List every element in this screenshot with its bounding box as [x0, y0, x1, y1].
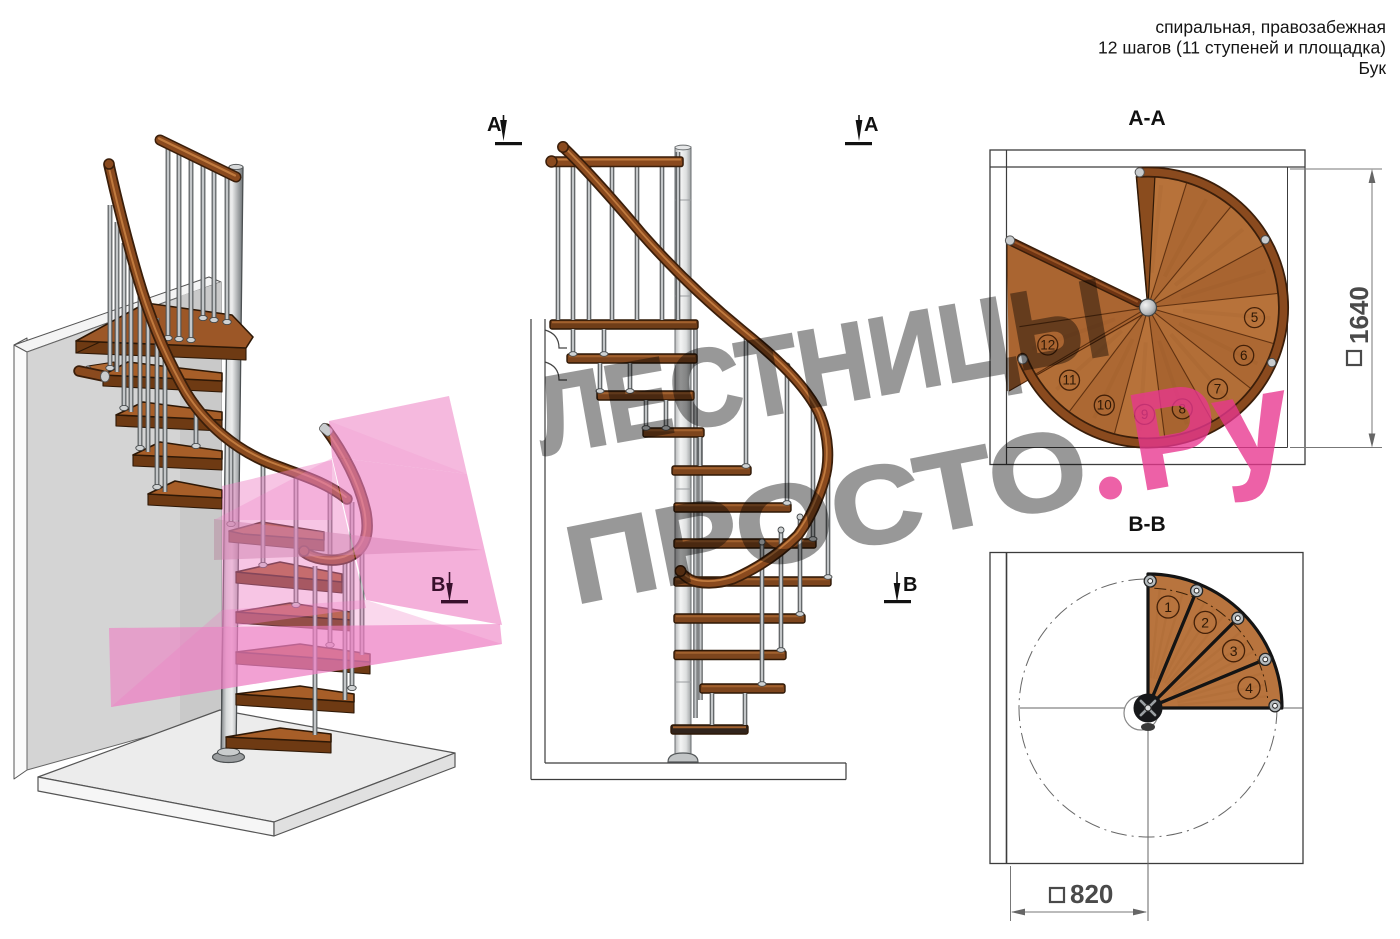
- svg-text:A: A: [864, 114, 878, 136]
- svg-text:820: 820: [1070, 879, 1113, 909]
- svg-text:Бук: Бук: [1358, 58, 1386, 78]
- svg-text:A-A: A-A: [1128, 107, 1165, 130]
- svg-text:1: 1: [1164, 599, 1172, 615]
- svg-text:3: 3: [1230, 643, 1238, 659]
- svg-text:5: 5: [1251, 310, 1259, 325]
- svg-text:B: B: [431, 574, 445, 596]
- svg-text:1640: 1640: [1344, 286, 1374, 344]
- svg-text:10: 10: [1097, 398, 1112, 413]
- svg-text:12 шагов (11 ступеней и площад: 12 шагов (11 ступеней и площадка): [1098, 38, 1386, 58]
- svg-text:B: B: [903, 574, 917, 596]
- svg-text:A: A: [487, 114, 501, 136]
- svg-text:2: 2: [1201, 614, 1209, 630]
- svg-text:4: 4: [1245, 680, 1253, 696]
- svg-text:Ру: Ру: [1119, 341, 1301, 518]
- svg-text:спиральная, правозабежная: спиральная, правозабежная: [1155, 17, 1386, 37]
